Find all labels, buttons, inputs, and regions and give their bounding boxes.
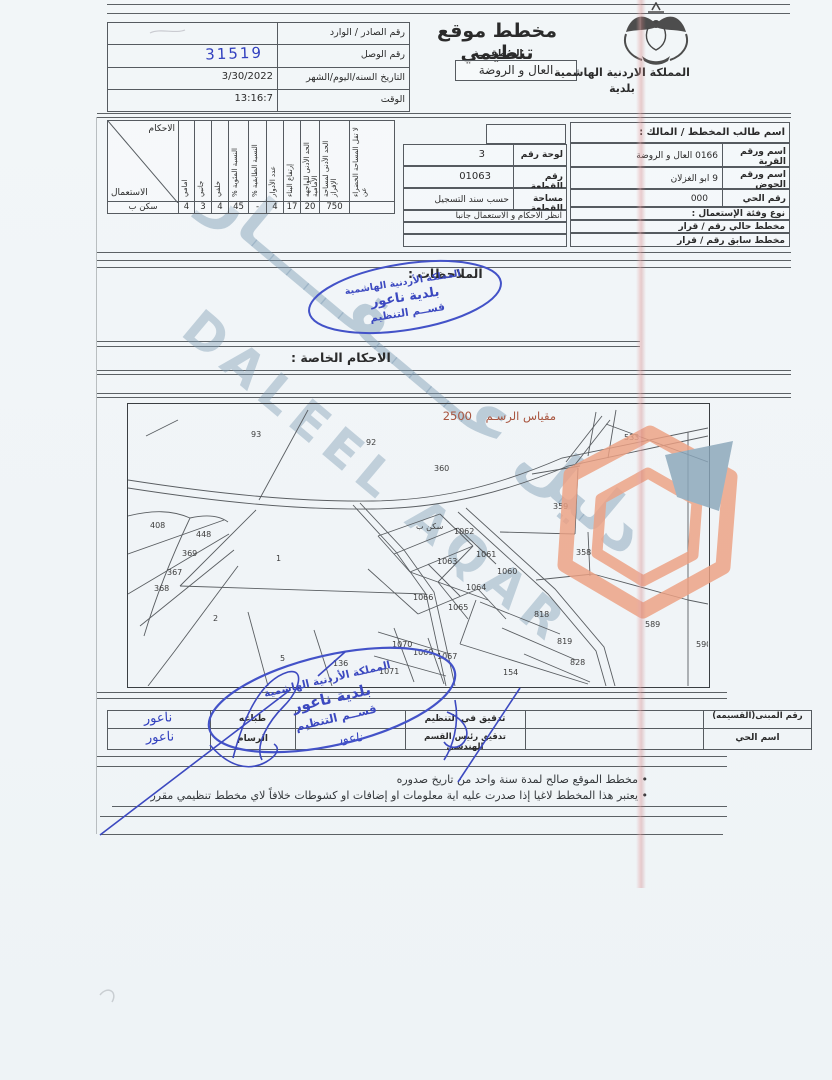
left-margin-line [96, 117, 97, 834]
basin-value: 9 ابو الغزلان [570, 167, 723, 189]
table-row: 31519 رقم الوصل [108, 44, 409, 66]
receipt-table: رقم الصادر / الوارد 31519 رقم الوصل 3/30… [107, 22, 410, 112]
table-row: رقم الصادر / الوارد [108, 23, 409, 44]
region-caption: المنطقــــة [458, 49, 538, 59]
provision-column-header: إرتفاع البناء [286, 121, 294, 197]
table-row: 13:16:7 الوقت [108, 89, 409, 111]
time-label: الوقت [277, 90, 409, 111]
provision-value: 750 [320, 201, 349, 213]
provision-column: النسبة الطابقية %- [248, 121, 266, 213]
parcel-label: 1063 [437, 557, 457, 566]
parcel-label: 1065 [448, 603, 468, 612]
provision-value: - [249, 201, 266, 213]
ruled-line [97, 370, 791, 371]
scan-crease-line [636, 0, 646, 888]
parcel-number-label: رقم القطعة [513, 166, 567, 188]
ruled-line [97, 397, 791, 398]
stamp-municipality-text: بلدية ناعور [369, 285, 441, 311]
cancellation-note: • يعتبر هذا المخطط لاغيا إذا صدرت عليه ا… [140, 788, 648, 803]
owner-header: اسم طالب المخطط / المالك : [570, 122, 790, 143]
ruled-line [112, 806, 727, 807]
print-label: طباعه [212, 714, 293, 724]
village-label: اسم ورقم القرية [722, 143, 790, 167]
basin-label: اسم ورقم الحوض [722, 167, 790, 189]
approval-col-line [405, 710, 406, 750]
parcel-label: 2 [213, 614, 218, 623]
parcel-area-label: مساحة القطعة [513, 188, 567, 210]
printer-town-handwritten: ناعور [120, 729, 200, 747]
ruled-line [97, 692, 727, 693]
district-number-value: 000 [570, 189, 723, 207]
planning-check-label: تدقيق في التنظيم [407, 714, 523, 724]
parcel-label: 1061 [476, 550, 496, 559]
usage-type-header: نوع وفئة الإستعمال : [570, 207, 790, 220]
ruled-line [97, 698, 727, 699]
provision-value: 4 [267, 201, 283, 213]
provision-value: 3 [195, 201, 211, 213]
ruled-line [97, 374, 791, 375]
parcel-label: 136 [333, 659, 348, 668]
provision-column-header: خلفي [214, 121, 222, 197]
blank-cell [403, 222, 567, 234]
provision-column: الحد الأدنى للواجهه الأمامية20 [300, 121, 319, 213]
stamp-department-text: قســم التنظيم [369, 301, 446, 325]
time-value: 13:16:7 [108, 90, 277, 111]
provision-column: لا تقل المساحة الخضراء عن [349, 121, 394, 213]
parcel-label: 1062 [454, 527, 474, 536]
provision-column-header: جانبي [197, 121, 205, 197]
ruled-line [97, 341, 640, 342]
provision-column: النسبة المئوية %45 [228, 121, 248, 213]
parcel-label: 819 [557, 637, 572, 646]
provision-column-header: النسبة الطابقية % [251, 121, 259, 197]
provision-column: جانبي3 [194, 121, 211, 213]
parcel-label: 1071 [379, 667, 399, 676]
parcel-label: 360 [434, 464, 449, 473]
table-row: 3/30/2022 التاريخ السنه/اليوم/الشهر [108, 67, 409, 89]
parcel-label: 1 [276, 554, 281, 563]
parcel-label: 448 [196, 530, 211, 539]
provision-column-header: امامي [181, 121, 189, 197]
provision-value: 4 [179, 201, 194, 213]
approval-row-divider [107, 728, 812, 729]
parcel-label: 368 [154, 584, 169, 593]
special-provisions-label: الاحكام الخاصة : [291, 350, 391, 365]
district-name-label: اسم الحي [705, 733, 810, 743]
parcel-label: 367 [167, 568, 182, 577]
village-value: 0166 العال و الروضة [570, 143, 723, 167]
provisions-corner-label: الاحكام [149, 124, 175, 134]
provision-value: 20 [301, 201, 319, 213]
jordan-coat-of-arms-icon [618, 2, 694, 66]
parcel-area-value: حسب سند التسجيل [403, 188, 514, 210]
see-provisions-note: انظر الاحكام و الاستعمال جانبا [403, 210, 567, 222]
ruled-line [97, 766, 727, 767]
approval-col-line [525, 710, 526, 750]
parcel-label: 92 [366, 438, 376, 447]
provision-column: خلفي4 [211, 121, 228, 213]
provision-column-header: لا تقل المساحة الخضراء عن [352, 121, 368, 197]
provision-column: امامي4 [178, 121, 194, 213]
provision-column-header: النسبة المئوية % [231, 121, 239, 197]
validity-note: • مخطط الموقع صالح لمدة سنة واحد من تاري… [150, 772, 648, 787]
approval-col-line [295, 710, 296, 750]
parcel-label: 1070 [392, 640, 412, 649]
date-value: 3/30/2022 [108, 68, 277, 89]
parcel-label: 408 [150, 521, 165, 530]
provision-value: 4 [212, 201, 228, 213]
parcel-label: 154 [503, 668, 518, 677]
approval-col-line [210, 710, 211, 750]
parcel-number-value: 01063 [403, 166, 514, 188]
ruled-line [97, 252, 791, 253]
parcel-label: 1069 [413, 648, 433, 657]
provision-column-header: الحد الأدنى لمساحة الإفراز [322, 121, 338, 197]
ruled-line [97, 117, 791, 118]
approval-col-line [703, 710, 704, 750]
provision-value: 45 [229, 201, 248, 213]
district-number-label: رقم الحي [722, 189, 790, 207]
parcel-label: 5 [280, 654, 285, 663]
issued-number-label: رقم الصادر / الوارد [277, 23, 409, 44]
issued-number-value [108, 23, 277, 44]
provisions-usage-table: الاحكام الاستعمال سكن ب امامي4جانبي3خلفي… [107, 120, 395, 214]
engineering-head-check-label: تدقيق رئيس القسم الهندسي [407, 733, 523, 753]
notes-section-label: الملاحظات : [408, 266, 483, 281]
naour-municipality-stamp: المملكة الأردنية الهاشمية بلدية ناعور قس… [304, 249, 506, 345]
municipality-word: بلدية [548, 82, 696, 95]
sheet-number-label: لوحة رقم [513, 144, 567, 166]
provision-column: عدد الأدوار4 [266, 121, 283, 213]
parcel-label: 1067 [437, 652, 457, 661]
current-plan-label: مخطط حالي رقم / قرار [570, 220, 790, 233]
blank-cell [403, 234, 567, 247]
previous-plan-label: مخطط سابق رقم / قرار [570, 233, 790, 247]
receipt-number-label: رقم الوصل [277, 45, 409, 66]
parcel-label: 590 [696, 640, 708, 649]
parcel-label: 1064 [466, 583, 486, 592]
kingdom-name: المملكة الاردنية الهاشمية [548, 66, 696, 79]
provision-column: إرتفاع البناء17 [283, 121, 300, 213]
parcel-label: 93 [251, 430, 261, 439]
parcel-label: 828 [570, 658, 585, 667]
parcel-label: 369 [182, 549, 197, 558]
ruled-line [97, 113, 791, 114]
provision-value [350, 201, 394, 213]
draftsman-label: الرسام [212, 734, 293, 744]
receipt-number-handwritten: 31519 [108, 42, 278, 69]
ruled-line [97, 260, 791, 261]
blank-box [486, 124, 566, 144]
ruled-line [97, 393, 791, 394]
ruled-line [100, 816, 727, 817]
provision-value: 17 [284, 201, 300, 213]
scanned-site-plan-document: دليل عـــــقـــــار DALEEL AQAR مخطط موق… [0, 0, 832, 1080]
ruled-line [97, 756, 727, 757]
provision-column-header: الحد الأدنى للواجهه الأمامية [303, 121, 319, 197]
provision-column: الحد الأدنى لمساحة الإفراز750 [319, 121, 349, 213]
provision-column-header: عدد الأدوار [269, 121, 277, 197]
usage-corner-label: الاستعمال [111, 188, 148, 198]
sheet-number-value: 3 [403, 144, 514, 166]
map-scale-value: 2500 [443, 409, 472, 423]
faint-mark [100, 990, 114, 1002]
date-label: التاريخ السنه/اليوم/الشهر [277, 68, 409, 89]
ruled-line [100, 834, 723, 835]
building-number-label: رقم المبنى(القسيمه) [705, 712, 810, 722]
diagonal-header-cell: الاحكام الاستعمال سكن ب [108, 121, 178, 213]
daleel-aqar-logo [515, 415, 785, 630]
ruled-line [97, 346, 640, 347]
parcel-label: 1066 [413, 593, 433, 602]
zone-label: سكن ب [416, 522, 443, 531]
